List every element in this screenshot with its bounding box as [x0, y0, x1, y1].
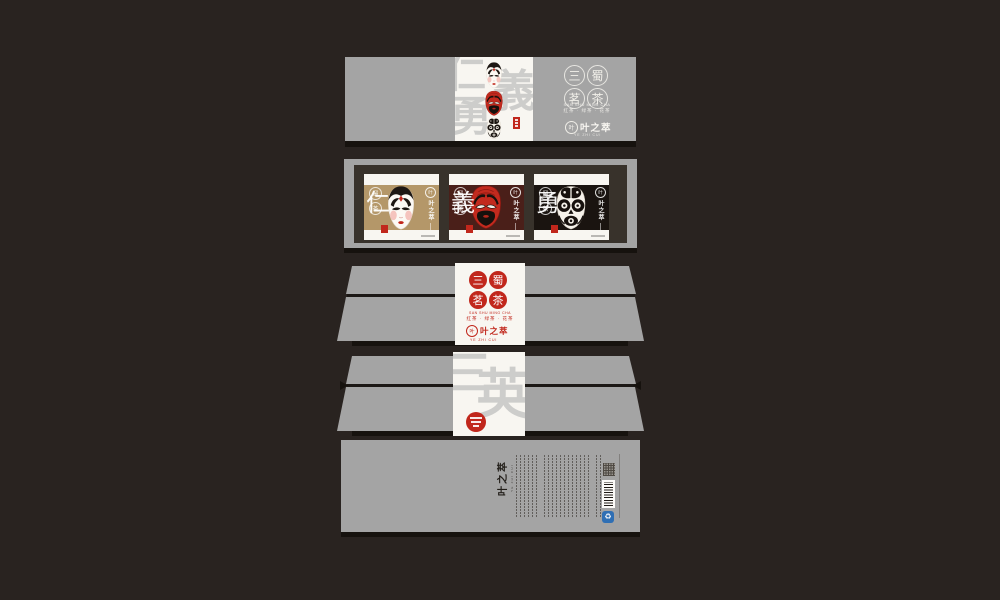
box-shadow	[345, 141, 636, 147]
brand-seal: 蜀	[587, 65, 608, 86]
brand-logo: 叶 叶之萃	[466, 325, 509, 337]
brand-logo-sub: YE ZHI CUI	[510, 464, 514, 492]
tea-card-yong: 蜀 茶 叶 叶之萃 勇	[534, 174, 609, 240]
brand-logo-name: 叶之萃	[494, 460, 509, 496]
product-info-fine-print	[516, 454, 602, 518]
brand-seal: 三	[469, 271, 487, 289]
black-opera-face-mask-icon	[481, 117, 507, 140]
brand-seal-grid: 三 蜀 茗 茶	[469, 271, 507, 309]
box-shadow	[344, 248, 637, 253]
brand-logo-name: 叶之萃	[580, 120, 612, 134]
card-logo-column: 叶 叶之萃	[510, 187, 521, 230]
brand-seal: 茶	[489, 291, 507, 309]
tagline-cn: 红茶 · 绿茶 · 花茶	[455, 316, 525, 323]
barcode-bars	[604, 482, 613, 506]
micro-text-bar	[591, 235, 605, 237]
red-seal-stamp	[381, 225, 388, 233]
packaging-design-board: 仁 義 勇 三 蜀 茗 茶 SAN SHU MING CHA 红茶 · 绿茶 ·…	[0, 0, 1000, 600]
brand-seal: 三	[564, 65, 585, 86]
card-logo-column: 叶 叶之萃	[595, 187, 606, 230]
qr-stamp-icon	[603, 463, 615, 476]
brand-seal: 茗	[469, 291, 487, 309]
taglines: SAN SHU MING CHA 红茶 · 绿茶 · 花茶	[557, 102, 617, 115]
brand-logo-vertical: 叶之萃	[596, 200, 605, 221]
box-shadow	[341, 532, 640, 537]
red-seal-stamp	[551, 225, 558, 233]
white-opera-face-mask-icon	[480, 61, 508, 89]
label-edge-line	[619, 454, 620, 518]
lid-label-panel: 仁 義 勇	[455, 57, 533, 141]
micro-text-bar	[421, 235, 435, 237]
leaf-emblem-icon: 叶	[510, 187, 521, 198]
barcode	[602, 480, 615, 508]
tea-card-yi: 蜀 茶 叶 叶之萃 義	[449, 174, 524, 240]
brand-seal: 蜀	[489, 271, 507, 289]
brand-logo-sub: YE ZHI CUI	[470, 338, 497, 342]
brand-logo: 叶 叶之萃	[565, 120, 612, 134]
front-band-label: 三 蜀 茗 茶 SAN SHU MING CHA 红茶 · 绿茶 · 花茶 叶 …	[455, 263, 525, 345]
taglines: SAN SHU MING CHA 红茶 · 绿茶 · 花茶	[455, 311, 525, 323]
tea-card-ren: 蜀 茶 叶 叶之萃 仁	[364, 174, 439, 240]
recycle-icon: ♻	[602, 511, 614, 523]
red-seal-stamp	[466, 225, 473, 233]
brand-logo-vertical: 叶之萃	[511, 200, 520, 221]
leaf-emblem-icon: 叶	[425, 187, 436, 198]
back-band-label: 三 英	[453, 352, 525, 436]
watermark-character: 英	[476, 367, 525, 421]
red-opera-face-mask-icon	[480, 90, 508, 117]
brand-logo-name: 叶之萃	[480, 325, 509, 337]
micro-text-bar	[515, 223, 516, 230]
brand-logo-rotated: 叶之萃 YE ZHI CUI	[494, 455, 510, 501]
micro-text-bar	[600, 223, 601, 230]
virtue-calligraphy: 勇	[536, 191, 560, 215]
red-round-seal-stamp	[466, 412, 486, 432]
leaf-emblem-icon: 叶	[595, 187, 606, 198]
box-lid-top: 仁 義 勇 三 蜀 茗 茶 SAN SHU MING CHA 红茶 · 绿茶 ·…	[345, 57, 636, 141]
virtue-calligraphy: 仁	[366, 191, 390, 215]
virtue-calligraphy: 義	[451, 191, 475, 215]
brand-logo-vertical: 叶之萃	[426, 200, 435, 221]
brand-logo-sub: YE ZHI CUI	[574, 133, 601, 137]
card-logo-column: 叶 叶之萃	[425, 187, 436, 230]
red-seal-stamp	[513, 117, 520, 129]
micro-text-bar	[506, 235, 520, 237]
box-base: 叶之萃 YE ZHI CUI ♻	[341, 440, 640, 532]
micro-text-bar	[430, 223, 431, 230]
tagline-cn: 红茶 · 绿茶 · 花茶	[557, 108, 617, 115]
leaf-emblem-icon: 叶	[466, 325, 478, 337]
leaf-emblem-icon: 叶	[565, 121, 578, 134]
